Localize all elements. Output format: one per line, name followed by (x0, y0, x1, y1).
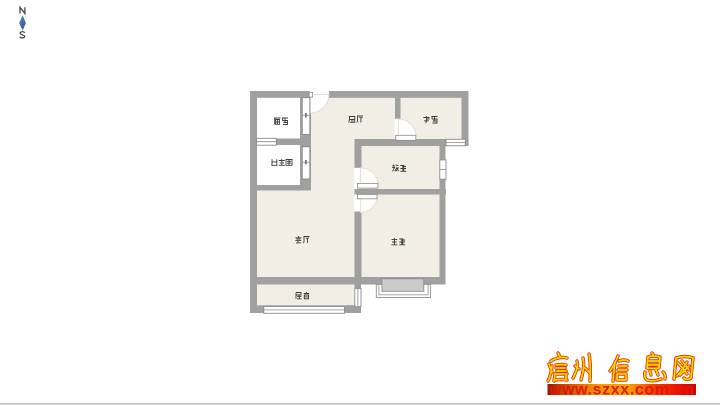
svg-text:www.szxx.com.cn: www.szxx.com.cn (548, 382, 694, 399)
